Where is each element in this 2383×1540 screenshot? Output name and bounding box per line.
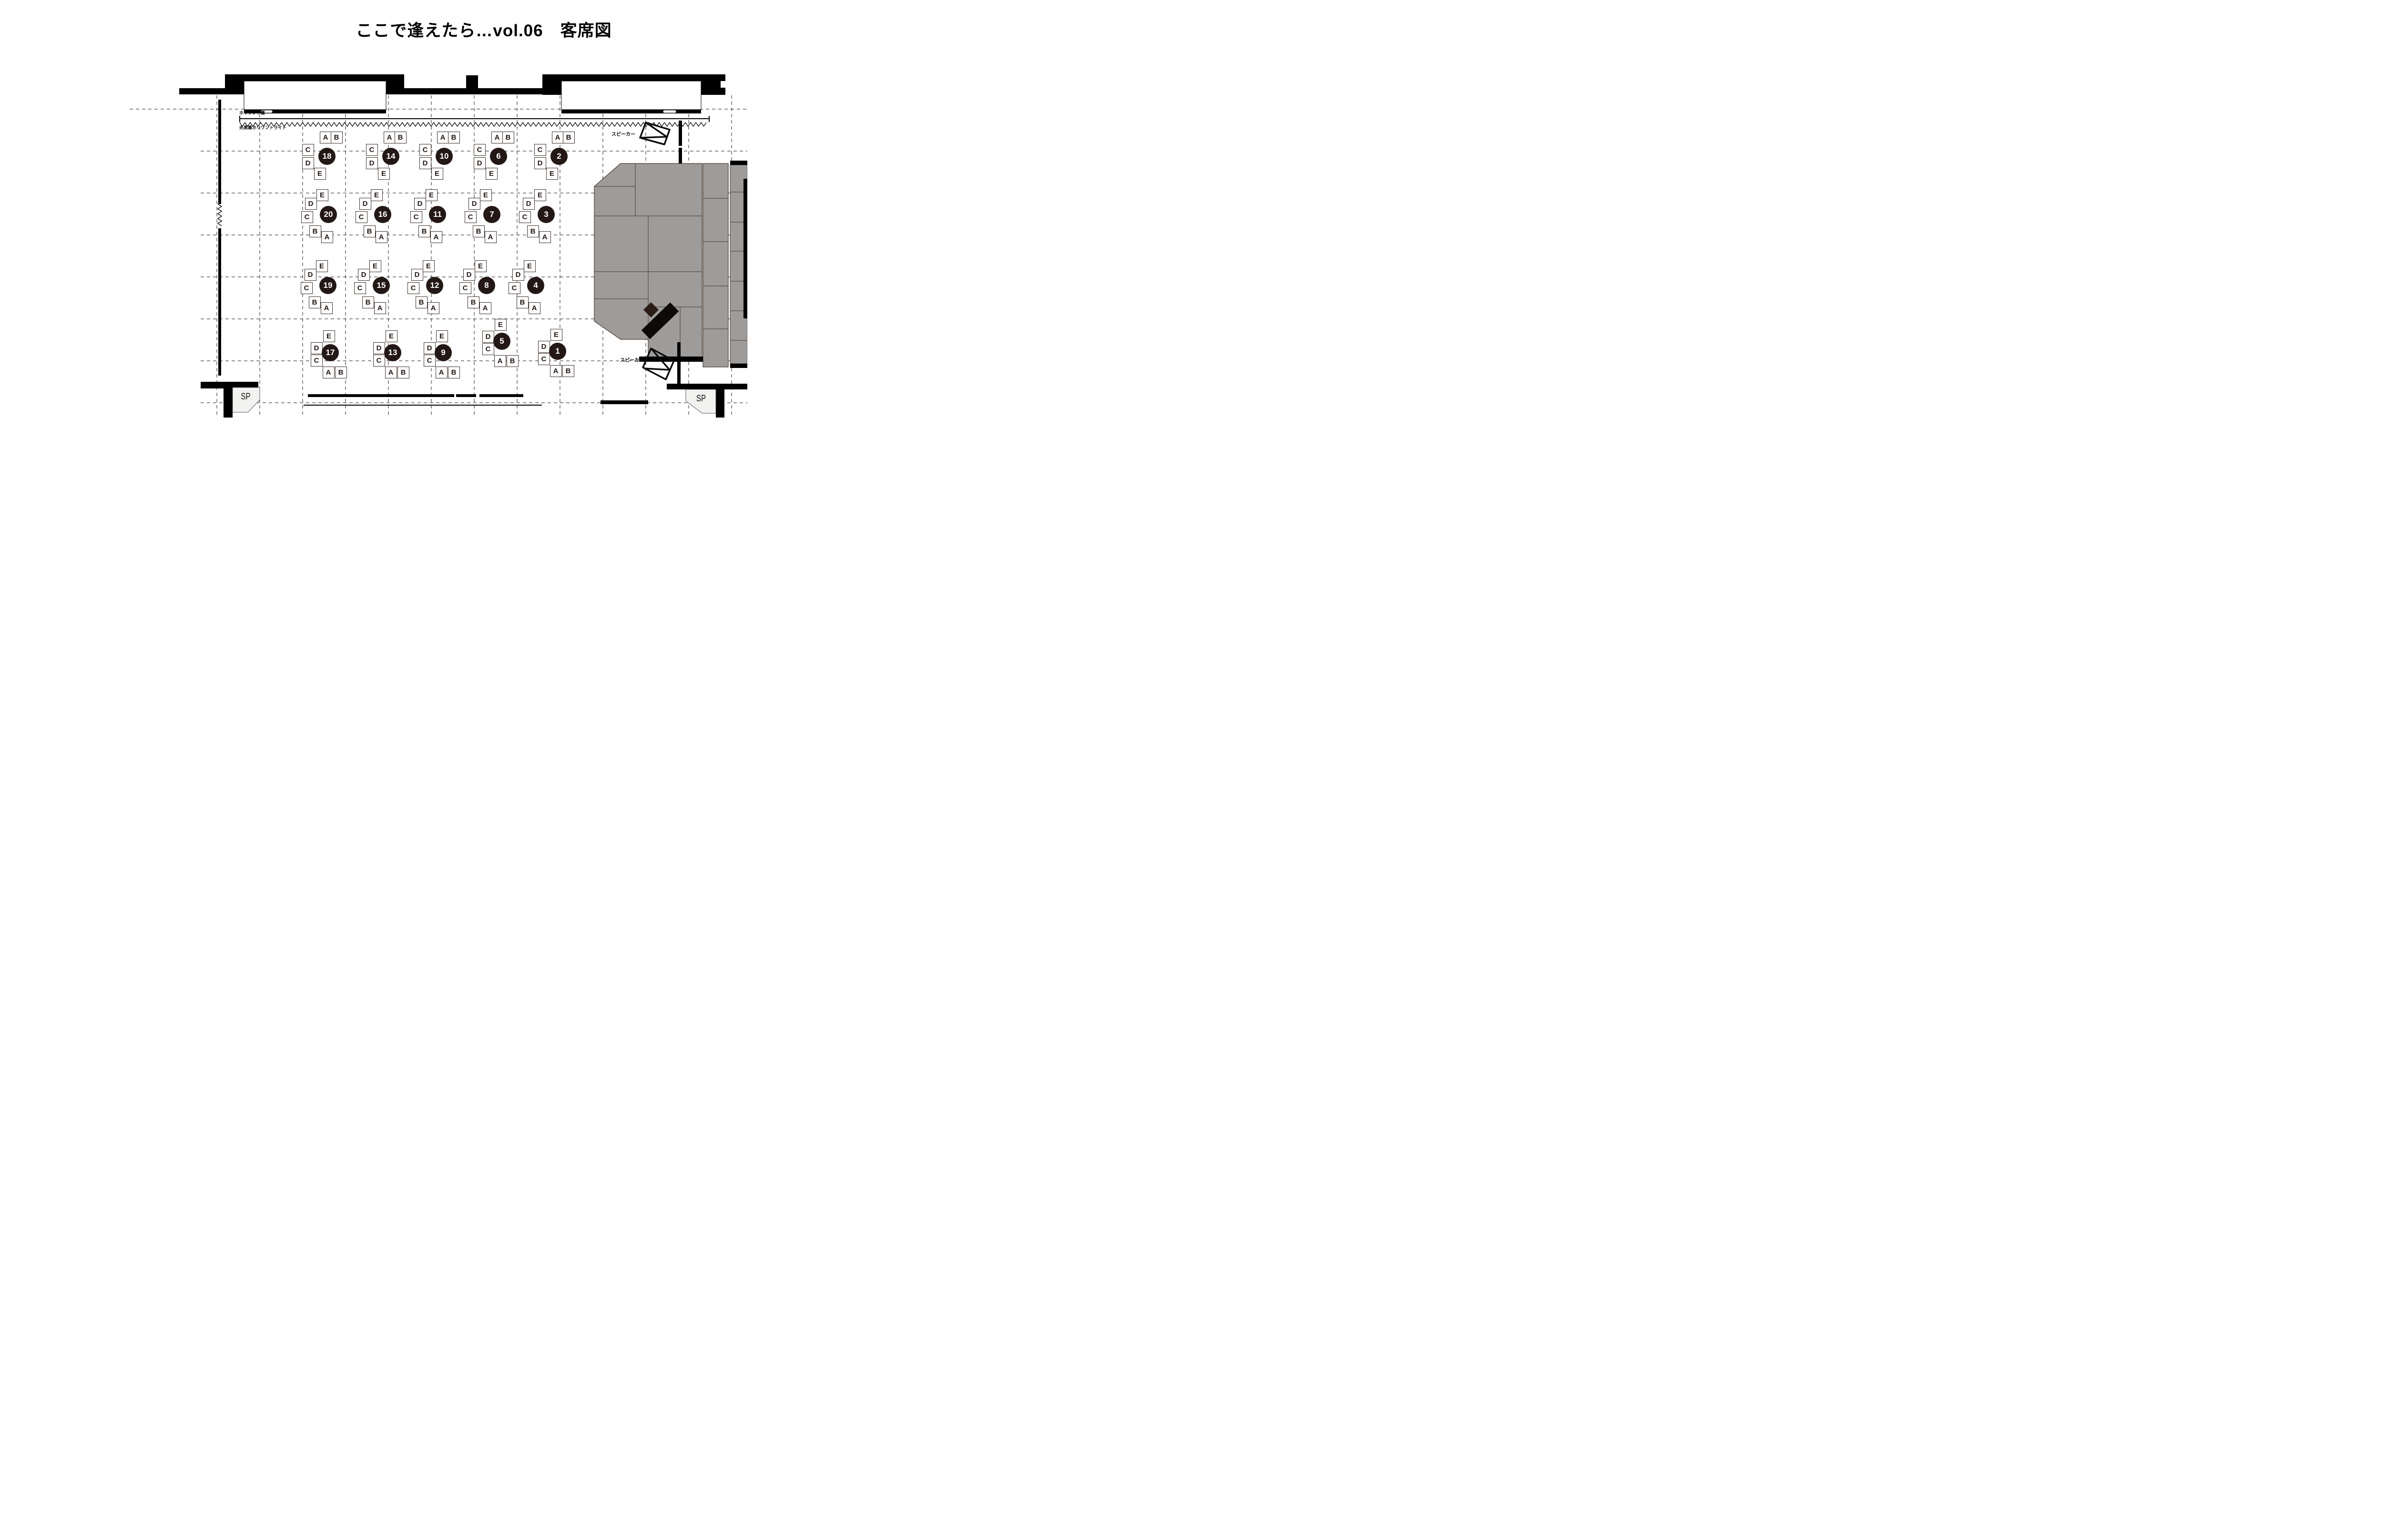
seat-13-A: A (385, 367, 397, 378)
seat-2-A: A (552, 132, 564, 143)
seat-1-D: D (538, 341, 550, 353)
table-number-circle-14: 14 (382, 148, 399, 165)
table-number-circle-10: 10 (436, 148, 453, 165)
seat-7-D: D (468, 198, 480, 210)
entrance-alcove-right (542, 74, 725, 113)
seat-11-B: B (418, 225, 430, 237)
table-group-6: ABCDE6 (465, 123, 532, 190)
left-wall (218, 100, 221, 376)
seat-9-B: B (448, 367, 460, 378)
seat-19-D: D (305, 269, 316, 281)
stage-right-section (730, 161, 747, 368)
table-number-circle-1: 1 (549, 343, 566, 360)
table-number-circle-12: 12 (426, 277, 443, 294)
seat-9-D: D (424, 342, 436, 354)
table-group-9: ABCDE9 (410, 319, 477, 386)
left-wall-zigzag (218, 204, 222, 226)
seat-8-E: E (475, 260, 487, 272)
seat-8-C: C (459, 282, 471, 294)
seat-1-A: A (550, 365, 562, 377)
seat-20-A: A (321, 231, 333, 243)
door-marker (663, 110, 676, 113)
sp-booth-right-label: SP (689, 394, 713, 404)
seat-20-C: C (301, 211, 313, 223)
page-title: ここで逢えたら…vol.06 客席図 (295, 17, 672, 41)
seat-16-E: E (371, 189, 383, 201)
table-number-circle-3: 3 (538, 206, 555, 223)
seat-17-B: B (335, 367, 347, 378)
table-number-circle-9: 9 (435, 344, 452, 361)
table-number-circle-6: 6 (490, 148, 507, 165)
table-group-17: ABCDE17 (297, 319, 364, 386)
seat-6-D: D (474, 157, 486, 169)
top-wall-pillar (466, 75, 478, 88)
top-wall-middle-segment (404, 88, 542, 94)
seat-3-E: E (534, 189, 546, 201)
seat-13-E: E (386, 330, 397, 342)
seat-10-C: C (419, 144, 431, 156)
seat-17-D: D (311, 342, 323, 354)
seat-4-B: B (517, 296, 529, 308)
seat-7-A: A (485, 231, 497, 243)
seat-9-E: E (436, 330, 448, 342)
seat-10-A: A (437, 132, 449, 143)
seat-6-C: C (474, 144, 486, 156)
table-group-1: ABCDE1 (524, 318, 591, 385)
seat-12-E: E (423, 260, 435, 272)
seat-4-E: E (524, 260, 536, 272)
table-number-circle-18: 18 (318, 148, 336, 165)
seat-12-D: D (411, 269, 423, 281)
table-number-circle-13: 13 (384, 344, 401, 361)
table-number-circle-4: 4 (527, 277, 544, 294)
horizon-curtain-label: ホリゾント幕 (239, 110, 265, 116)
seat-20-B: B (309, 225, 321, 237)
table-number-circle-2: 2 (550, 148, 568, 165)
seat-4-C: C (509, 282, 520, 294)
seat-16-C: C (356, 211, 367, 223)
seat-12-B: B (416, 296, 428, 308)
seat-16-B: B (364, 225, 376, 237)
seat-6-B: B (502, 132, 514, 143)
seat-2-B: B (563, 132, 575, 143)
table-group-3: ABCDE3 (513, 181, 580, 248)
seat-13-D: D (373, 342, 385, 354)
seat-14-B: B (395, 132, 407, 143)
seat-17-E: E (323, 330, 335, 342)
seat-15-B: B (362, 296, 374, 308)
seat-18-A: A (320, 132, 332, 143)
sp-booth-left-label: SP (234, 392, 257, 402)
seat-5-B: B (507, 355, 519, 367)
seat-19-E: E (316, 260, 328, 272)
table-number-circle-7: 7 (483, 206, 500, 223)
seat-8-B: B (468, 296, 479, 308)
seat-11-E: E (426, 189, 438, 201)
seat-18-B: B (331, 132, 343, 143)
seat-11-D: D (414, 198, 426, 210)
table-number-circle-17: 17 (322, 344, 339, 361)
seat-14-D: D (366, 157, 378, 169)
seat-14-A: A (384, 132, 396, 143)
table-number-circle-20: 20 (320, 206, 337, 223)
table-number-circle-11: 11 (429, 206, 446, 223)
seat-10-D: D (419, 157, 431, 169)
table-number-circle-8: 8 (478, 277, 495, 294)
seat-7-E: E (480, 189, 492, 201)
seat-19-C: C (301, 282, 313, 294)
seat-3-C: C (519, 211, 531, 223)
floor-boundary-line (304, 405, 542, 406)
speaker-icon-top (640, 122, 670, 144)
seat-19-B: B (309, 296, 321, 308)
seat-14-E: E (378, 168, 390, 180)
seat-2-E: E (546, 168, 558, 180)
seat-1-B: B (562, 365, 574, 377)
seat-18-D: D (302, 157, 314, 169)
table-number-circle-5: 5 (493, 333, 510, 350)
seat-6-E: E (486, 168, 498, 180)
seat-5-D: D (482, 331, 494, 343)
table-group-2: ABCDE2 (526, 123, 592, 190)
seat-9-A: A (436, 367, 448, 378)
seat-17-C: C (311, 355, 323, 367)
seat-13-B: B (397, 367, 409, 378)
seat-16-A: A (376, 231, 387, 243)
seat-5-E: E (495, 319, 507, 331)
seat-19-A: A (321, 302, 333, 314)
table-number-circle-19: 19 (319, 277, 336, 294)
speaker-label-top: スピーカー (611, 130, 635, 137)
table-number-circle-15: 15 (373, 277, 390, 294)
seat-18-C: C (302, 144, 314, 156)
seat-3-B: B (527, 225, 539, 237)
stage-area (594, 121, 747, 384)
seat-2-C: C (534, 144, 546, 156)
seat-15-E: E (369, 260, 381, 272)
seat-4-D: D (512, 269, 524, 281)
black-curtain-horizon-light-label: 央黒幕ホリゾントライト (239, 124, 286, 131)
seat-12-C: C (407, 282, 419, 294)
seat-2-D: D (534, 157, 546, 169)
seat-12-A: A (428, 302, 439, 314)
seat-14-C: C (366, 144, 378, 156)
entrance-alcove-left (225, 74, 404, 113)
seat-20-D: D (305, 198, 317, 210)
seat-15-A: A (374, 302, 386, 314)
floor-plan: ここで逢えたら…vol.06 客席図 ホリゾント幕 央黒幕ホリゾントライト スピ… (0, 0, 747, 418)
seat-11-C: C (410, 211, 422, 223)
seat-15-D: D (358, 269, 370, 281)
seat-20-E: E (316, 189, 328, 201)
table-group-18: ABCDE18 (294, 123, 360, 190)
seat-17-A: A (323, 367, 335, 378)
seat-3-A: A (539, 231, 551, 243)
seat-10-E: E (431, 168, 443, 180)
seat-11-A: A (430, 231, 442, 243)
seat-13-C: C (373, 355, 385, 367)
seat-18-E: E (314, 168, 326, 180)
seat-3-D: D (523, 198, 535, 210)
seat-16-D: D (359, 198, 371, 210)
seat-7-C: C (465, 211, 477, 223)
seat-1-E: E (550, 329, 562, 341)
table-number-circle-16: 16 (374, 206, 391, 223)
speaker-label-bottom: スピーカー (620, 356, 644, 363)
seat-8-D: D (463, 269, 475, 281)
seat-1-C: C (538, 353, 550, 365)
seat-9-C: C (424, 355, 436, 367)
seat-6-A: A (491, 132, 503, 143)
seat-10-B: B (448, 132, 460, 143)
seat-7-B: B (473, 225, 485, 237)
seat-15-C: C (354, 282, 366, 294)
seat-5-C: C (482, 343, 494, 355)
stage-riser-column (703, 163, 728, 367)
seat-5-A: A (494, 355, 506, 367)
stage-front-floor-bars (304, 394, 648, 406)
